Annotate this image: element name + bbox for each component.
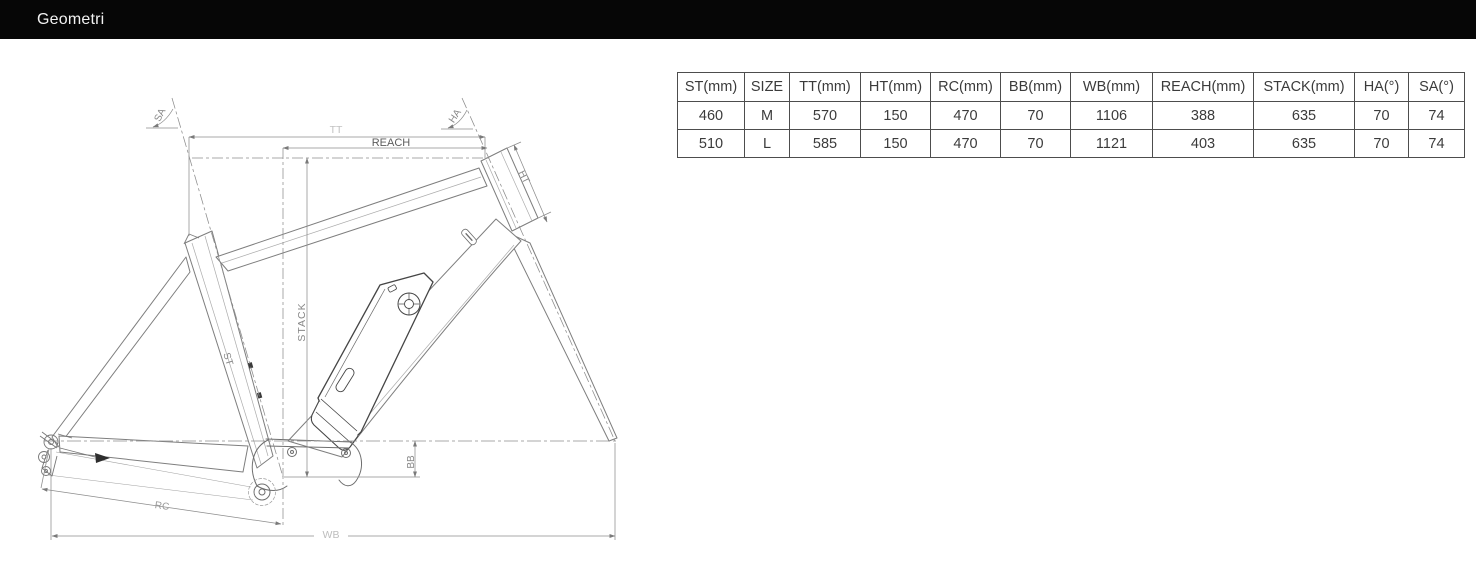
table-cell: 70 <box>1355 102 1409 130</box>
table-header-cell: BB(mm) <box>1001 73 1071 102</box>
fork-blade <box>506 232 617 441</box>
label-bb: BB <box>406 455 417 469</box>
geometry-table: ST(mm)SIZETT(mm)HT(mm)RC(mm)BB(mm)WB(mm)… <box>677 72 1465 158</box>
table-header-cell: HA(°) <box>1355 73 1409 102</box>
table-cell: 70 <box>1355 130 1409 158</box>
label-rc: RC <box>154 500 170 513</box>
table-cell: 150 <box>861 102 931 130</box>
table-header-cell: SA(°) <box>1409 73 1465 102</box>
geometry-table-container: ST(mm)SIZETT(mm)HT(mm)RC(mm)BB(mm)WB(mm)… <box>677 72 1465 158</box>
table-header-cell: REACH(mm) <box>1153 73 1254 102</box>
motor-bolt-icon <box>288 448 297 457</box>
table-cell: 470 <box>931 102 1001 130</box>
seatstay-tube <box>52 257 190 447</box>
table-header-cell: HT(mm) <box>861 73 931 102</box>
table-header-cell: SIZE <box>745 73 790 102</box>
table-header-cell: RC(mm) <box>931 73 1001 102</box>
table-cell: 470 <box>931 130 1001 158</box>
table-cell: 70 <box>1001 130 1071 158</box>
table-cell: 150 <box>861 130 931 158</box>
table-cell: 1121 <box>1071 130 1153 158</box>
label-reach: REACH <box>372 137 411 149</box>
table-cell: 74 <box>1409 130 1465 158</box>
label-stack: STACK <box>296 302 308 341</box>
table-header-cell: ST(mm) <box>678 73 745 102</box>
table-cell: 510 <box>678 130 745 158</box>
table-cell: 635 <box>1254 102 1355 130</box>
table-header-cell: STACK(mm) <box>1254 73 1355 102</box>
table-cell: 403 <box>1153 130 1254 158</box>
table-cell: 74 <box>1409 102 1465 130</box>
table-cell: L <box>745 130 790 158</box>
frame-geometry-diagram: SA HA TT REACH HT ST STACK BB RC WB <box>0 0 660 568</box>
table-cell: 585 <box>790 130 861 158</box>
table-cell: 635 <box>1254 130 1355 158</box>
crank-spindle-icon <box>254 484 270 500</box>
chainstay-tube <box>59 436 248 472</box>
table-header-row: ST(mm)SIZETT(mm)HT(mm)RC(mm)BB(mm)WB(mm)… <box>678 73 1465 102</box>
table-cell: 70 <box>1001 102 1071 130</box>
table-cell: 1106 <box>1071 102 1153 130</box>
table-row: 460M5701504707011063886357074 <box>678 102 1465 130</box>
table-cell: 460 <box>678 102 745 130</box>
table-header-cell: WB(mm) <box>1071 73 1153 102</box>
top-tube <box>216 168 487 271</box>
table-row: 510L5851504707011214036357074 <box>678 130 1465 158</box>
table-cell: M <box>745 102 790 130</box>
table-cell: 570 <box>790 102 861 130</box>
label-tt: TT <box>330 124 343 136</box>
label-sa: SA <box>153 107 169 124</box>
table-cell: 388 <box>1153 102 1254 130</box>
dimension-lines <box>41 98 617 540</box>
label-wb: WB <box>323 529 340 541</box>
label-ha: HA <box>447 107 464 125</box>
table-header-cell: TT(mm) <box>790 73 861 102</box>
